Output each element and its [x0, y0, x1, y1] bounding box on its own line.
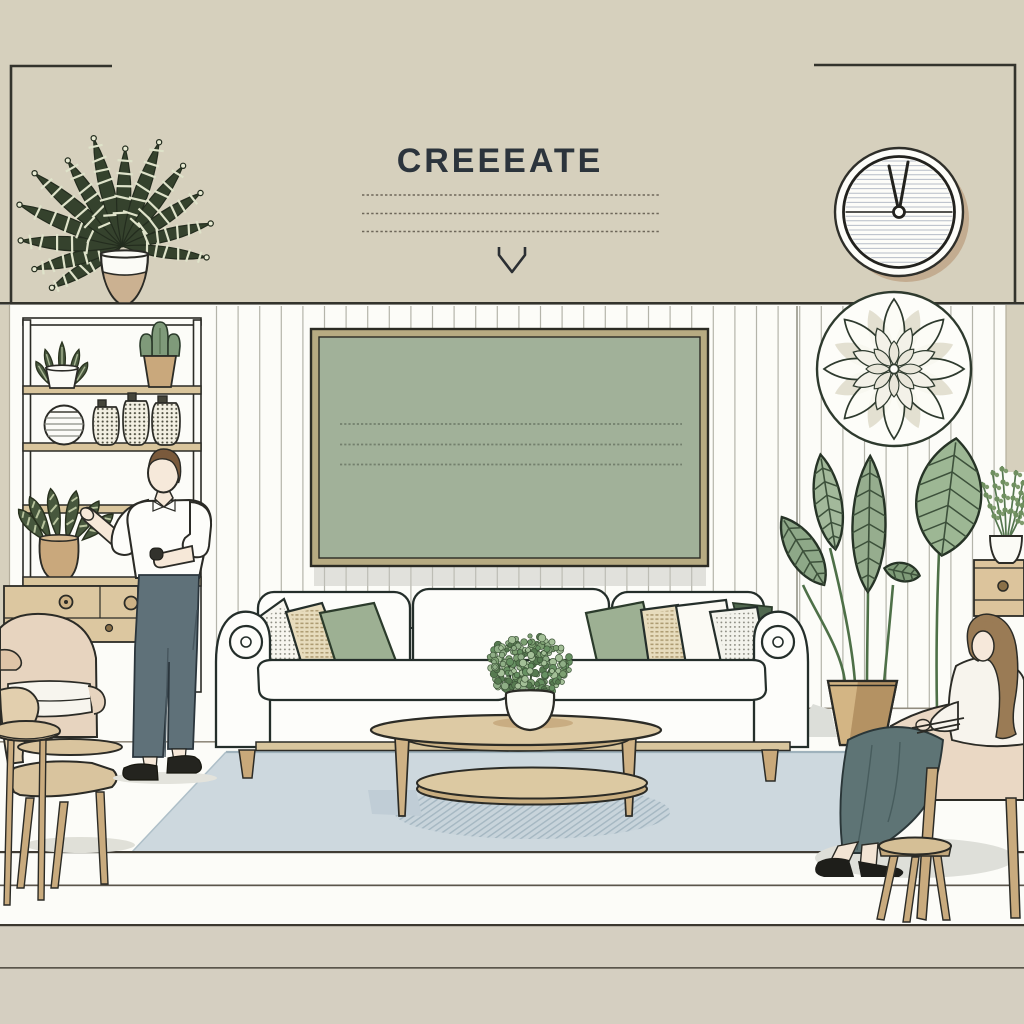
svg-text:CREEEATE: CREEEATE	[397, 142, 604, 180]
